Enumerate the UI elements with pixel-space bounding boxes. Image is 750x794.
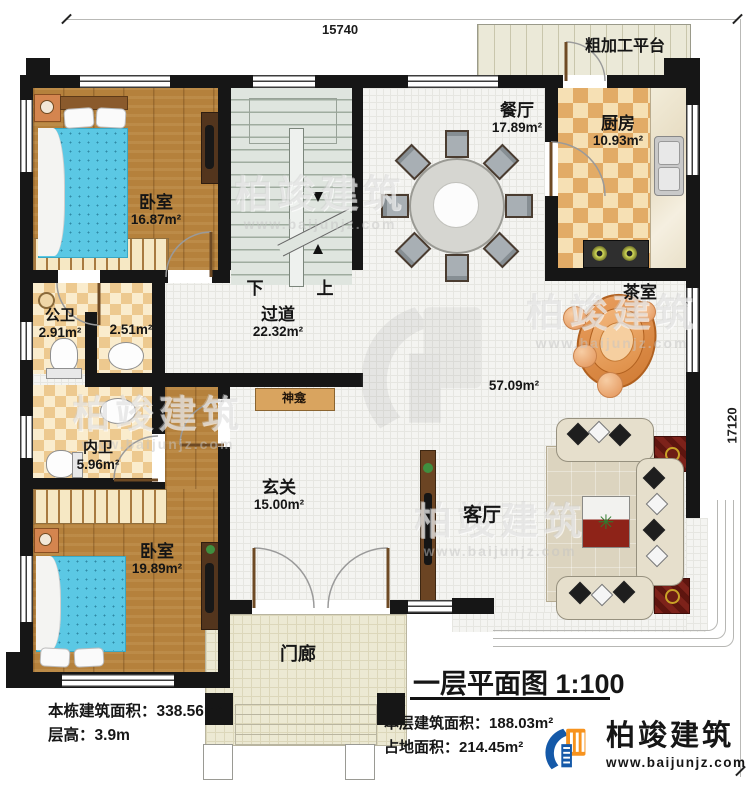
- room-label-living: 客厅: [463, 505, 501, 526]
- tv-icon: [205, 563, 214, 613]
- pillow: [63, 107, 94, 129]
- room-label-platform: 粗加工平台: [585, 38, 665, 56]
- bed-sheet: [36, 556, 61, 650]
- floor-height-value: 3.9m: [95, 727, 130, 744]
- total-area-label: 本栋建筑面积：: [48, 703, 157, 720]
- dimension-right-value: 17120: [725, 407, 740, 443]
- room-label-hallway: 过道 22.32m²: [253, 305, 303, 339]
- window: [408, 600, 452, 613]
- tv-icon: [424, 493, 432, 565]
- dimension-top-value: 15740: [322, 22, 358, 37]
- tv-cabinet: [420, 450, 436, 610]
- plant-icon: [423, 463, 433, 473]
- window: [80, 75, 170, 88]
- window: [408, 75, 498, 88]
- watermark-logo-icon: [350, 290, 520, 440]
- sofa: [556, 418, 654, 462]
- stove: [583, 240, 649, 268]
- sink: [108, 342, 144, 370]
- tea-stool: [597, 372, 623, 398]
- wall-kitchen-bottom: [545, 268, 700, 281]
- wall-bath-right: [152, 282, 165, 373]
- bed-sheet: [38, 128, 65, 256]
- dimension-line-right: [740, 19, 741, 777]
- window: [20, 322, 33, 360]
- room-label-tea-room: 茶室: [623, 283, 657, 302]
- toilet: [50, 338, 78, 372]
- room-label-small-bath: 2.51m²: [110, 322, 153, 337]
- room-label-open-area: 57.09m²: [489, 378, 539, 393]
- plan-title: 一层平面图 1:100: [413, 662, 625, 701]
- column-base: [203, 744, 233, 780]
- room-label-foyer: 玄关 15.00m²: [254, 478, 304, 512]
- window: [20, 416, 33, 458]
- wall-bath-divider: [85, 312, 97, 374]
- room-label-kitchen: 厨房 10.93m²: [593, 114, 643, 148]
- corner-pilaster: [6, 652, 22, 688]
- wall-dining-kitchen: [545, 88, 558, 142]
- dining-table-turntable: [433, 182, 479, 228]
- clock-icon: [40, 100, 54, 114]
- corner-pilaster: [664, 58, 700, 76]
- chair: [445, 254, 469, 282]
- tea-stool: [563, 306, 587, 330]
- pillow: [40, 647, 71, 668]
- wall-front-stub: [452, 598, 494, 614]
- burner-icon: [592, 246, 607, 261]
- brand-name: 柏竣建筑: [606, 722, 747, 751]
- room-label-inner-bath: 内卫 5.96m²: [77, 440, 120, 472]
- window: [253, 75, 315, 88]
- plant-icon: ✳: [598, 510, 615, 535]
- pillow: [95, 107, 126, 129]
- footprint-value: 214.45m²: [459, 739, 523, 756]
- clock-icon: [39, 533, 52, 546]
- window: [62, 674, 174, 687]
- kitchen-sink: [654, 136, 684, 196]
- wall-dining-kitchen: [545, 196, 558, 268]
- sink: [100, 398, 136, 424]
- burner-icon: [622, 246, 637, 261]
- coffee-table: ✳: [582, 496, 630, 548]
- nightstand: [34, 94, 61, 122]
- porch-steps: [235, 704, 377, 746]
- chair: [445, 130, 469, 158]
- total-area-row: 本栋建筑面积：338.56m²: [48, 699, 223, 721]
- stair-direction-arrow: [313, 192, 323, 202]
- level-area-label: 本层建筑面积：: [384, 715, 489, 732]
- dimension-line-top: [66, 19, 738, 20]
- room-label-bedroom2: 卧室 19.89m²: [132, 542, 182, 576]
- medallion-icon: [665, 589, 680, 604]
- title-underline: [410, 697, 610, 700]
- nightstand: [34, 528, 59, 553]
- total-area-value: 338.56m²: [157, 703, 223, 720]
- shrine-label: 神龛: [282, 392, 306, 405]
- wall-bedroom2-top: [33, 478, 165, 489]
- floor-height-row: 层高：3.9m: [48, 723, 130, 745]
- window: [686, 105, 699, 175]
- plant-icon: [206, 545, 215, 554]
- brand-logo: 柏竣建筑 www.baijunjz.com: [542, 722, 747, 774]
- stair-down-label: 下: [247, 279, 264, 298]
- wall-bedroom1-stair: [218, 88, 231, 270]
- tv-icon: [205, 125, 214, 169]
- room-label-public-bath: 公卫 2.91m²: [39, 308, 82, 340]
- brand-logo-icon: [542, 722, 598, 774]
- chair: [505, 194, 533, 218]
- wall-hallway-bottom: [85, 373, 363, 387]
- footprint-label: 占地面积：: [384, 739, 459, 756]
- brand-website: www.baijunjz.com: [606, 755, 747, 770]
- window: [20, 556, 33, 622]
- level-area-row: 本层建筑面积：188.03m²: [384, 712, 553, 733]
- room-label-bedroom1: 卧室 16.87m²: [131, 193, 181, 227]
- toilet-tank: [46, 368, 82, 379]
- sink-basin: [658, 141, 680, 165]
- floor-height-label: 层高：: [48, 727, 95, 744]
- room-label-dining: 餐厅 17.89m²: [492, 101, 542, 135]
- tea-stool: [634, 301, 656, 323]
- room-label-porch: 门廊: [280, 644, 316, 664]
- pillow: [74, 647, 105, 668]
- wardrobe: [33, 489, 167, 524]
- stair-rail: [289, 128, 304, 287]
- tea-stool: [573, 344, 597, 368]
- footprint-row: 占地面积：214.45m²: [384, 736, 523, 757]
- window: [20, 100, 33, 172]
- floor-plan: ✳: [0, 0, 750, 794]
- stair-up-label: 上: [317, 279, 334, 298]
- wall-stair-dining: [352, 88, 363, 270]
- brand-text: 柏竣建筑 www.baijunjz.com: [606, 722, 747, 770]
- stair-direction-arrow: [313, 244, 323, 254]
- chair: [381, 194, 409, 218]
- corner-pilaster: [26, 58, 50, 76]
- column-base: [345, 744, 375, 780]
- window: [686, 288, 699, 372]
- sink-basin: [658, 167, 680, 191]
